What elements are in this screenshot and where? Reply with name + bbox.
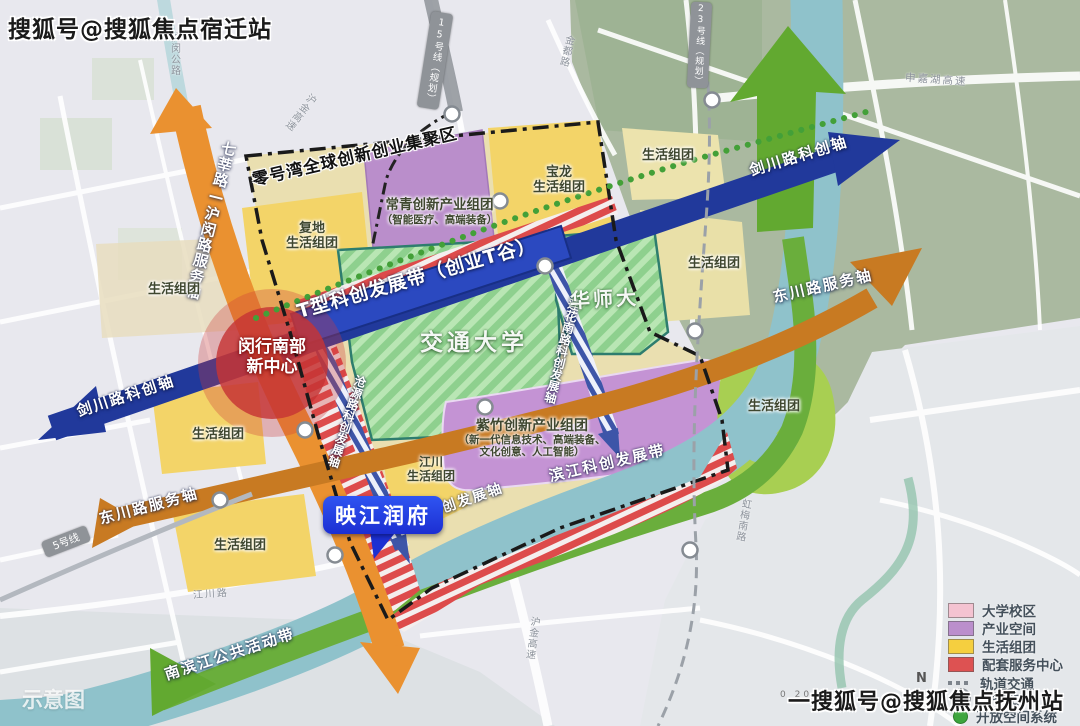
zizhu-title: 紫竹创新产业组团 [452,418,612,434]
watermark-schematic: 示意图 [22,688,85,712]
changqing-title: 常青创新产业组团 [372,198,507,214]
changqing-sub: （智能医疗、高端装备） [372,214,507,226]
legend-item-service: 配套服务中心 [948,654,1063,674]
zizhu-sub2: 文化创意、人工智能） [452,446,612,458]
project-callout: 映江润府 [323,496,443,534]
zone-label-huashida: 华师大 [569,286,639,313]
zone-label-living-ne: 生活组团 [642,149,694,164]
legend-label-university: 大学校区 [982,600,1036,620]
zone-label-jiangchuan: 江川 生活组团 [402,456,460,484]
zone-label-living-east-upper: 生活组团 [688,257,740,272]
new-center-line1: 闵行南部 [222,338,322,358]
legend-swatch-industry [948,621,974,636]
zone-label-living-southwest: 生活组团 [192,428,244,443]
legend-item-university: 大学校区 [948,600,1036,620]
zone-label-living-west: 生活组团 [148,283,200,298]
zone-label-living-east-lower: 生活组团 [748,400,800,415]
line23-badge: 23号线（规划） [687,2,712,89]
legend-label-service: 配套服务中心 [982,654,1063,674]
baolong-line2: 生活组团 [528,181,590,196]
new-center-label: 闵行南部 新中心 [222,338,322,377]
new-center-line2: 新中心 [222,358,322,378]
zone-label-changqing: 常青创新产业组团 （智能医疗、高端装备） [372,198,507,226]
zone-label-baolong: 宝龙 生活组团 [528,166,590,196]
zone-label-living-south: 生活组团 [214,539,266,554]
legend-swatch-living [948,639,974,654]
zone-label-zizhu: 紫竹创新产业组团 （新一代信息技术、高端装备、 文化创意、人工智能） [452,418,612,458]
legend-label-industry: 产业空间 [982,618,1036,638]
west-park-block [40,118,112,170]
legend-swatch-university [948,603,974,618]
zizhu-sub1: （新一代信息技术、高端装备、 [452,434,612,446]
legend-label-living: 生活组团 [982,636,1036,656]
fudi-line1: 复地 [282,222,342,237]
jiangchuan-line2: 生活组团 [402,470,460,484]
legend-item-industry: 产业空间 [948,618,1036,638]
legend-swatch-service [948,657,974,672]
planning-map: 七莘路—沪闵路服务轴 剑川路科创轴 剑川路科创轴 T型科创发展带（创业T谷） 零… [0,0,1080,726]
watermark-top-left: 搜狐号@搜狐焦点宿迁站 [8,10,272,44]
watermark-bottom-right: 一搜狐号@搜狐焦点抚州站 [788,684,1064,716]
zone-label-fudi: 复地 生活组团 [282,222,342,252]
zone-label-jiaotong-university: 交通大学 [420,330,528,356]
project-name: 映江润府 [335,500,431,530]
legend-item-living: 生活组团 [948,636,1036,656]
baolong-line1: 宝龙 [528,166,590,181]
fudi-line2: 生活组团 [282,237,342,252]
northeast-green-block [575,0,762,142]
